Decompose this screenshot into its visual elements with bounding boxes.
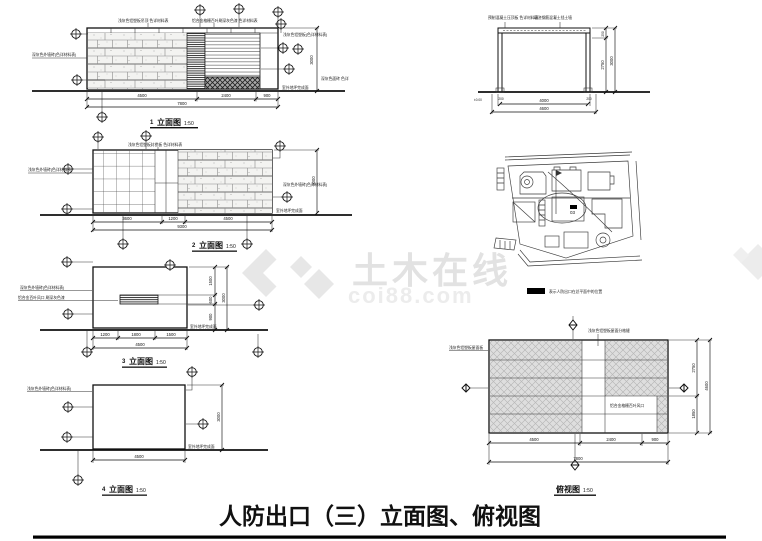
annotation: 铝合金百叶风口 刷深灰色漆: [18, 295, 65, 300]
dim-label: 200: [498, 97, 504, 101]
dim-label: 900: [652, 437, 660, 442]
annotation: 室外地坪完成面: [282, 85, 309, 90]
dim-label: 1500: [166, 332, 176, 337]
dim-label: 1800: [131, 332, 141, 337]
annotation: 深灰色外墙砖(色详材料表): [32, 52, 77, 57]
title-underline-bar: [33, 536, 726, 539]
dim-label: 250: [601, 31, 605, 37]
level-note: ±0.00: [474, 98, 482, 102]
annotation: 深灰色面砖 色详: [321, 76, 349, 81]
section-drawing: 预制混凝土压顶板 色详材料表 现浇钢筋混凝土挡土墙 ±0.00 200 200 …: [474, 15, 650, 114]
legend-swatch: [527, 288, 545, 294]
dim-label: 3000: [311, 176, 316, 186]
dim-label: 4500: [529, 437, 539, 442]
annotation: 浅灰色铝塑板(色详材料表): [283, 32, 328, 37]
view-title: 立面图: [199, 240, 223, 250]
annotation: 预制混凝土压顶板 色详材料表: [488, 15, 539, 20]
annotation: 铝合金格栅百叶刷深灰色漆 色详材料表: [192, 18, 258, 23]
dim-label: 4500: [223, 216, 233, 221]
dim-label: 3600: [122, 216, 132, 221]
dim-label: 4500: [135, 342, 145, 347]
annotation: 浅灰色外墙砖(色详材料表): [28, 167, 73, 172]
view-scale: 1:50: [583, 488, 593, 494]
dim-label: 1850: [691, 409, 696, 419]
annotation: 深灰色外墙砖(色详材料表): [283, 182, 328, 187]
cad-sheet: 土木在线 coi88.com 浅灰色铝塑板吊顶 色详材料表 铝合金格栅百叶刷深灰…: [0, 0, 762, 541]
dim-label: 2400: [221, 93, 231, 98]
annotation: 室外地坪完成面: [276, 208, 303, 213]
dim-label: 2750: [600, 60, 605, 70]
annotation: 现浇钢筋混凝土挡土墙: [534, 15, 572, 20]
dim-label: 4500: [134, 454, 144, 459]
view-title: 立面图: [129, 356, 153, 366]
view-scale: 1:50: [136, 488, 146, 494]
dim-label: 9300: [177, 224, 187, 229]
view-scale: 1:50: [226, 244, 236, 250]
elevation-3-drawing: 深灰色外墙砖(色详材料表) 铝合金百叶风口 刷深灰色漆 室外地坪完成面 1200…: [18, 256, 268, 368]
elevation-4-drawing: 浅灰色外墙砖(色详材料表) 室外地坪完成面 4500 3000 4 立面图 1:…: [27, 366, 268, 496]
dim-label: 900: [208, 313, 213, 321]
dim-label: 900: [264, 93, 272, 98]
dim-label: 3000: [609, 56, 614, 66]
exit-location-marker: [570, 205, 577, 209]
dim-label: 3000: [221, 293, 226, 303]
dim-label: 4500: [137, 93, 147, 98]
view-number: 4: [102, 487, 106, 493]
watermark-logo: 土木在线 coi88.com: [242, 244, 762, 308]
view-scale: 1:50: [156, 360, 166, 366]
building-label: 03: [570, 210, 576, 215]
dim-label: 4600: [539, 106, 549, 111]
dim-label: 4000: [539, 98, 549, 103]
annotation: 浅灰色铝塑板吊顶 色详材料表: [118, 18, 169, 23]
dim-label: 4600: [704, 381, 709, 391]
view-scale: 1:50: [184, 121, 194, 127]
dim-label: 3000: [216, 412, 221, 422]
view-title: 立面图: [109, 484, 133, 494]
dim-label: 1500: [208, 276, 213, 286]
view-title: 俯视图: [556, 484, 580, 494]
elevation-2-drawing: 浅灰色铝塑板封檐板 色详材料表 浅灰色外墙砖(色详材料表) 深灰色外墙砖(色详材…: [28, 130, 352, 252]
view-number: 3: [122, 359, 126, 365]
annotation: 铝合金格栅百叶风口: [610, 403, 644, 408]
dim-label: 7800: [177, 101, 187, 106]
dim-label: 1200: [168, 216, 178, 221]
view-number: 2: [192, 243, 196, 249]
sheet-title: 人防出口（三）立面图、俯视图: [219, 503, 541, 529]
view-title: 立面图: [157, 117, 181, 127]
annotation: 浅灰色铝塑板屋面分格缝: [588, 328, 630, 333]
site-key-plan: 03 表示人防出口在总平面中的位置: [494, 152, 642, 294]
dim-label: 1200: [100, 332, 110, 337]
top-view-drawing: 浅灰色铝塑板屋面分格缝 浅灰色铝塑板屋面板 铝合金格栅百叶风口 4500 240…: [449, 316, 712, 496]
dim-label: 3000: [309, 55, 314, 65]
annotation: 室外地坪完成面: [188, 444, 215, 449]
dim-label: 200: [586, 97, 592, 101]
drawing-canvas: 土木在线 coi88.com 浅灰色铝塑板吊顶 色详材料表 铝合金格栅百叶刷深灰…: [0, 0, 762, 541]
dim-label: 7800: [573, 456, 583, 461]
annotation: 浅灰色铝塑板封檐板 色详材料表: [128, 142, 182, 147]
annotation: 深灰色外墙砖(色详材料表): [20, 285, 65, 290]
dim-label: 2750: [691, 363, 696, 373]
dim-label: 2400: [606, 437, 616, 442]
annotation: 室外地坪完成面: [190, 324, 217, 329]
watermark-domain: coi88.com: [348, 283, 474, 308]
annotation: 浅灰色铝塑板屋面板: [449, 345, 483, 350]
annotation: 浅灰色外墙砖(色详材料表): [27, 386, 72, 391]
elevation-1-drawing: 浅灰色铝塑板吊顶 色详材料表 铝合金格栅百叶刷深灰色漆 色详材料表 深灰色外墙砖…: [32, 3, 349, 128]
legend-label: 表示人防出口在总平面中的位置: [549, 289, 602, 294]
view-number: 1: [150, 120, 154, 126]
dim-label: 600: [208, 296, 213, 304]
